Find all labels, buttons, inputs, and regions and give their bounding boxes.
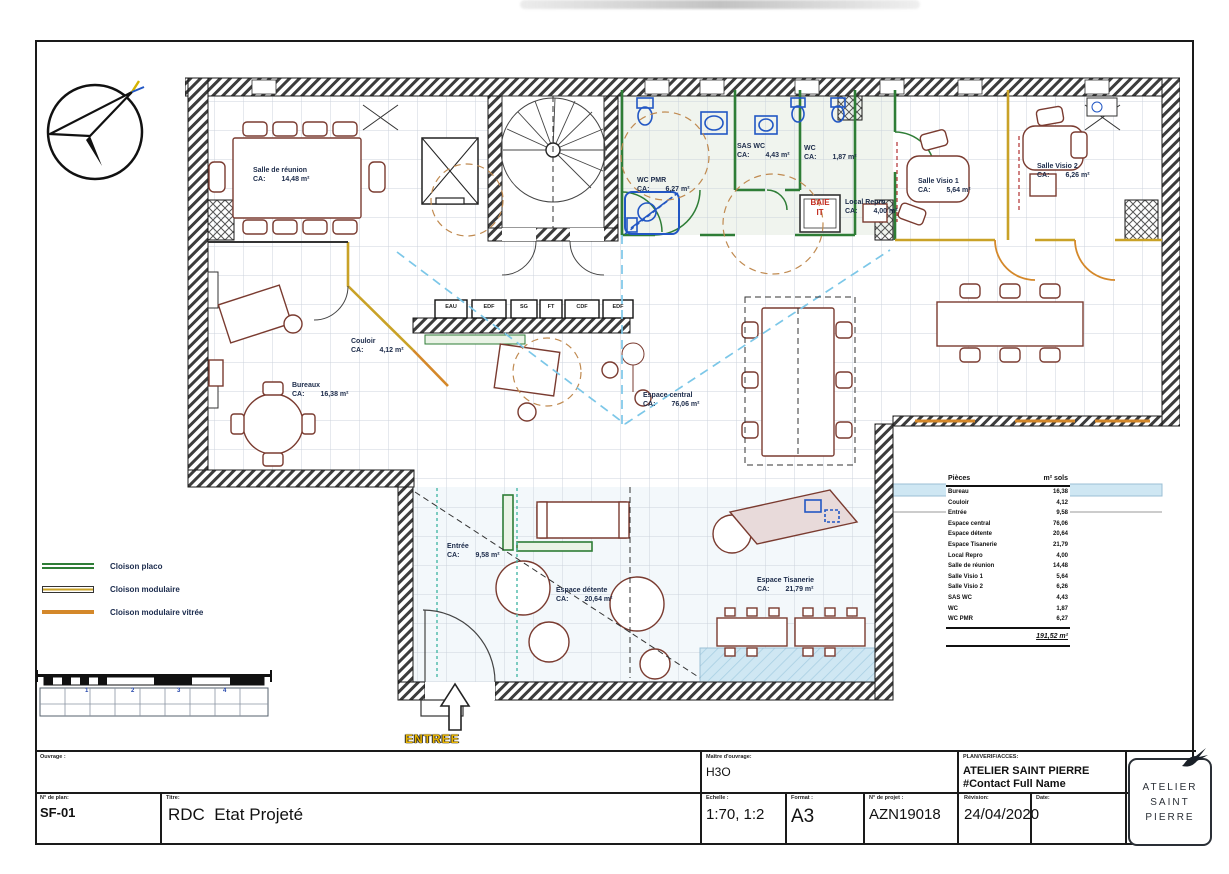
room-area: 14,48 m² xyxy=(281,176,309,183)
modulaire-line-sample xyxy=(42,586,94,593)
room-name: Salle Visio 2 xyxy=(1037,162,1090,171)
drawing-title: RDC Etat Projeté xyxy=(168,805,303,825)
table-row: Espace central76,06 xyxy=(946,519,1070,530)
room-name: Espace Tisanerie xyxy=(757,576,814,585)
titleblock-divider xyxy=(700,750,702,845)
room-name: Espace détente xyxy=(556,586,612,595)
format-label: Format : xyxy=(791,795,813,801)
row-label: Salle de réunion xyxy=(948,561,994,572)
room-label-salle-reunion: Salle de réunion CA:14,48 m² xyxy=(253,166,309,185)
ca-label: CA: xyxy=(556,596,568,603)
ca-label: CA: xyxy=(447,552,459,559)
room-label-espace-detente: Espace détente CA:20,64 m² xyxy=(556,586,612,605)
table-row: Couloir4,12 xyxy=(946,498,1070,509)
room-name: Local Repro xyxy=(845,198,898,207)
vitree-line-sample xyxy=(42,610,94,614)
row-value: 4,12 xyxy=(1056,498,1068,509)
room-area: 16,38 m² xyxy=(320,391,348,398)
ca-label: CA: xyxy=(253,176,265,183)
room-label-wc: WC CA:1,87 m² xyxy=(804,144,857,163)
scale-tick-3: 3 xyxy=(177,688,180,694)
row-label: SAS WC xyxy=(948,593,972,604)
room-area: 6,27 m² xyxy=(665,186,689,193)
legend-label: Cloison placo xyxy=(110,562,162,571)
scale-tick-4: 4 xyxy=(223,688,226,694)
author-line1: ATELIER SAINT PIERRE xyxy=(963,765,1089,777)
room-name: WC xyxy=(804,144,857,153)
ca-label: CA: xyxy=(292,391,304,398)
author-label: PLAN/VERIF/ACCES: xyxy=(963,754,1018,760)
room-area: 21,79 m² xyxy=(785,586,813,593)
titleblock-divider xyxy=(785,792,787,845)
col-m2-sols: m² sols xyxy=(1043,475,1068,482)
room-label-salle-visio-2: Salle Visio 2 CA:6,26 m² xyxy=(1037,162,1090,181)
ca-label: CA: xyxy=(845,208,857,215)
legend-item-modulaire: Cloison modulaire xyxy=(42,584,180,594)
room-name: Couloir xyxy=(351,337,404,346)
room-label-local-repro: Local Repro CA:4,00 m² xyxy=(845,198,898,217)
row-value: 1,87 xyxy=(1056,604,1068,615)
row-value: 4,00 xyxy=(1056,551,1068,562)
table-row: SAS WC4,43 xyxy=(946,593,1070,604)
legend-label: Cloison modulaire xyxy=(110,585,180,594)
atelier-saint-pierre-logo: ATELIER SAINT PIERRE xyxy=(1128,758,1212,846)
logo-line2: SAINT xyxy=(1150,797,1189,808)
room-name: WC PMR xyxy=(637,176,690,185)
row-label: Bureau xyxy=(948,487,969,498)
projet-value: AZN19018 xyxy=(869,806,941,823)
room-label-espace-central: Espace central CA:76,06 m² xyxy=(643,391,699,410)
floor-plan-drawing xyxy=(185,72,1180,752)
room-name: SAS WC xyxy=(737,142,790,151)
revision-value: 24/04/2020 xyxy=(964,806,1039,823)
ca-label: CA: xyxy=(351,347,363,354)
row-value: 20,64 xyxy=(1053,529,1068,540)
room-label-espace-tisanerie: Espace Tisanerie CA:21,79 m² xyxy=(757,576,814,595)
elevator xyxy=(422,138,478,204)
ca-label: CA: xyxy=(804,154,816,161)
entrance-label: ENTREE xyxy=(405,732,460,746)
titleblock-divider xyxy=(1125,750,1127,845)
room-area: 6,26 m² xyxy=(1065,172,1089,179)
revision-label: Révision: xyxy=(964,795,989,801)
echelle-value: 1:70, 1:2 xyxy=(706,806,764,823)
row-value: 21,79 xyxy=(1053,540,1068,551)
legend-item-vitree: Cloison modulaire vitrée xyxy=(42,607,203,617)
row-value: 6,27 xyxy=(1056,614,1068,625)
row-label: Espace détente xyxy=(948,529,992,540)
moa-label: Maître d'ouvrage: xyxy=(706,754,752,760)
table-row: Bureau16,38 xyxy=(946,487,1070,498)
room-name: Salle Visio 1 xyxy=(918,177,971,186)
table-total: 191,52 m² xyxy=(946,629,1070,645)
table-row: Salle de réunion14,48 xyxy=(946,561,1070,572)
ca-label: CA: xyxy=(637,186,649,193)
row-value: 5,64 xyxy=(1056,572,1068,583)
titleblock-top-rule xyxy=(35,750,1196,752)
baie-line2: IT xyxy=(799,208,841,218)
author-line2: #Contact Full Name xyxy=(963,778,1066,790)
moa-value: H3O xyxy=(706,765,731,779)
room-areas-table: Pièces m² sols Bureau16,38 Couloir4,12 E… xyxy=(946,474,1070,647)
logo-line3: PIERRE xyxy=(1145,812,1194,823)
baie-line1: BAIE xyxy=(799,198,841,208)
room-area: 1,87 m² xyxy=(832,154,856,161)
baie-it-label: BAIE IT xyxy=(799,198,841,219)
row-label: Local Repro xyxy=(948,551,983,562)
plan-number: SF-01 xyxy=(40,805,75,820)
projet-label: N° de projet : xyxy=(869,795,903,801)
room-label-entree: Entrée CA:9,58 m² xyxy=(447,542,500,561)
utility-box-edf1: EDF xyxy=(472,304,506,310)
room-area: 76,06 m² xyxy=(671,401,699,408)
legend-item-placo: Cloison placo xyxy=(42,561,162,571)
format-value: A3 xyxy=(791,806,814,828)
row-value: 4,43 xyxy=(1056,593,1068,604)
echelle-label: Echelle : xyxy=(706,795,729,801)
plan-number-label: N° de plan: xyxy=(40,795,69,801)
table-row: WC1,87 xyxy=(946,604,1070,615)
placo-line-sample xyxy=(42,563,94,569)
row-label: Couloir xyxy=(948,498,969,509)
table-row: Espace Tisanerie21,79 xyxy=(946,540,1070,551)
titleblock-divider xyxy=(160,792,162,845)
table-row: Espace détente20,64 xyxy=(946,529,1070,540)
north-compass-icon xyxy=(40,74,152,186)
room-area: 20,64 m² xyxy=(584,596,612,603)
ca-label: CA: xyxy=(737,152,749,159)
row-value: 9,58 xyxy=(1056,508,1068,519)
room-area: 4,00 m² xyxy=(873,208,897,215)
titre-label: Titre: xyxy=(166,795,180,801)
titleblock-divider xyxy=(957,750,959,845)
legend-label: Cloison modulaire vitrée xyxy=(110,608,203,617)
room-name: Entrée xyxy=(447,542,500,551)
utility-box-edf2: EDF xyxy=(603,304,633,310)
utility-box-eau: EAU xyxy=(435,304,467,310)
row-value: 6,26 xyxy=(1056,582,1068,593)
titleblock-mid-rule xyxy=(35,792,1128,794)
room-area: 4,12 m² xyxy=(379,347,403,354)
ouvrage-label: Ouvrage : xyxy=(40,754,66,760)
utility-box-sg: SG xyxy=(511,304,537,310)
room-name: Bureaux xyxy=(292,381,348,390)
table-row: Salle Visio 26,26 xyxy=(946,582,1070,593)
row-value: 14,48 xyxy=(1053,561,1068,572)
titleblock-divider xyxy=(863,792,865,845)
row-label: WC xyxy=(948,604,958,615)
table-row: Entrée9,58 xyxy=(946,508,1070,519)
room-area: 4,43 m² xyxy=(765,152,789,159)
room-label-salle-visio-1: Salle Visio 1 CA:5,64 m² xyxy=(918,177,971,196)
room-label-bureaux: Bureaux CA:16,38 m² xyxy=(292,381,348,400)
table-row: Local Repro4,00 xyxy=(946,551,1070,562)
drawing-sheet: Salle de réunion CA:14,48 m² WC PMR CA:6… xyxy=(0,0,1229,874)
room-name: Salle de réunion xyxy=(253,166,309,175)
date-label: Date: xyxy=(1036,795,1050,801)
utility-box-ft: FT xyxy=(540,304,562,310)
row-label: Espace Tisanerie xyxy=(948,540,997,551)
room-name: Espace central xyxy=(643,391,699,400)
row-label: Salle Visio 2 xyxy=(948,582,983,593)
room-label-wc-pmr: WC PMR CA:6,27 m² xyxy=(637,176,690,195)
ca-label: CA: xyxy=(757,586,769,593)
ca-label: CA: xyxy=(918,187,930,194)
row-label: Espace central xyxy=(948,519,990,530)
ca-label: CA: xyxy=(1037,172,1049,179)
ca-label: CA: xyxy=(643,401,655,408)
logo-line1: ATELIER xyxy=(1143,782,1198,793)
col-pieces: Pièces xyxy=(948,475,970,482)
scale-tick-1: 1 xyxy=(85,688,88,694)
row-label: Salle Visio 1 xyxy=(948,572,983,583)
room-label-sas-wc: SAS WC CA:4,43 m² xyxy=(737,142,790,161)
scale-tick-2: 2 xyxy=(131,688,134,694)
table-row: Salle Visio 15,64 xyxy=(946,572,1070,583)
row-label: Entrée xyxy=(948,508,967,519)
utility-box-cdf: CDF xyxy=(565,304,599,310)
table-bottom-rule xyxy=(946,645,1070,647)
room-area: 5,64 m² xyxy=(946,187,970,194)
scan-smudge xyxy=(520,0,920,9)
room-label-couloir: Couloir CA:4,12 m² xyxy=(351,337,404,356)
row-value: 16,38 xyxy=(1053,487,1068,498)
row-label: WC PMR xyxy=(948,614,973,625)
row-value: 76,06 xyxy=(1053,519,1068,530)
table-row: WC PMR6,27 xyxy=(946,614,1070,625)
graphic-scale-bar xyxy=(36,664,278,722)
bird-icon xyxy=(1182,748,1210,770)
room-area: 9,58 m² xyxy=(475,552,499,559)
area-table-header: Pièces m² sols xyxy=(946,474,1070,487)
